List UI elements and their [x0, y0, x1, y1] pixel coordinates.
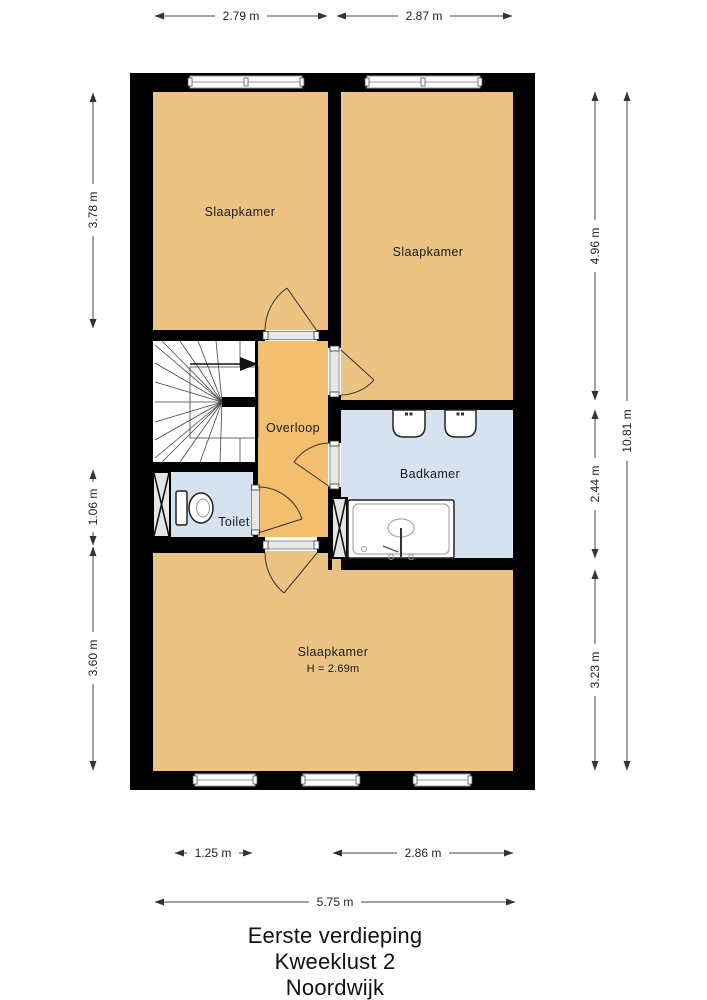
plan-title: Eerste verdieping Kweeklust 2 Noordwijk [248, 923, 423, 1000]
dim-right-1: 4.96 m [587, 92, 603, 400]
window-bottom-1 [193, 774, 257, 786]
bedroom-bottom-floor-left [153, 551, 341, 771]
dim-left-3: 3.60 m [85, 547, 101, 770]
wall-bedroomTL-bottom-right [317, 330, 341, 341]
svg-text:3.23 m: 3.23 m [588, 652, 602, 689]
dim-right-4: 10.81 m [619, 92, 635, 770]
title-floor: Eerste verdieping [248, 923, 423, 948]
duct-shaft-toilet [153, 472, 170, 537]
svg-text:2.86 m: 2.86 m [405, 846, 442, 860]
floor-plan-svg: Slaapkamer Slaapkamer Overloop Toilet Ba… [0, 0, 707, 1000]
inner-wall-center-mid [328, 395, 341, 443]
toilet-label: Toilet [218, 515, 250, 529]
outer-wall-right [513, 73, 535, 790]
stair-newel-wall [222, 397, 258, 407]
dim-bottom-1: 1.25 m [175, 845, 252, 861]
wall-bathroom-bottom [341, 558, 513, 570]
dim-top-2: 2.87 m [337, 8, 512, 24]
bedroom-top-right-label: Slaapkamer [393, 245, 464, 259]
svg-text:2.44 m: 2.44 m [588, 466, 602, 503]
sink-icon-left [393, 410, 425, 437]
svg-text:10.81 m: 10.81 m [620, 409, 634, 452]
svg-text:1.06 m: 1.06 m [86, 489, 100, 526]
bedroom-top-left-label: Slaapkamer [205, 205, 276, 219]
window-top-right [365, 76, 482, 88]
svg-text:2.79 m: 2.79 m [223, 9, 260, 23]
window-bottom-2 [301, 774, 360, 786]
floorplan-page: Slaapkamer Slaapkamer Overloop Toilet Ba… [0, 0, 707, 1000]
svg-text:1.25 m: 1.25 m [195, 846, 232, 860]
wall-stair-landing [255, 341, 258, 462]
bathroom-label: Badkamer [400, 467, 460, 481]
dim-right-2: 2.44 m [587, 410, 603, 558]
dim-left-1: 3.78 m [85, 93, 101, 328]
title-address: Kweeklust 2 [275, 949, 396, 974]
svg-text:3.78 m: 3.78 m [86, 192, 100, 229]
dim-right-3: 3.23 m [587, 570, 603, 770]
landing-floor [258, 341, 328, 537]
window-top-left [188, 76, 304, 88]
duct-shaft-bathroom [332, 498, 347, 558]
dim-top-1: 2.79 m [155, 8, 327, 24]
landing-label: Overloop [266, 421, 320, 435]
inner-wall-center-upper [328, 92, 341, 348]
bedroom-bottom-label: Slaapkamer [298, 645, 369, 659]
svg-text:4.96 m: 4.96 m [588, 228, 602, 265]
dim-left-2: 1.06 m [85, 470, 101, 545]
svg-text:3.60 m: 3.60 m [86, 640, 100, 677]
toilet-icon [176, 491, 213, 525]
wall-landing-bottom-left [153, 537, 265, 553]
dim-bottom-2: 2.86 m [333, 845, 513, 861]
bedroom-bottom-floor-right [341, 570, 513, 771]
wall-bathroom-top [341, 400, 513, 410]
svg-text:5.75 m: 5.75 m [317, 895, 354, 909]
svg-text:2.87 m: 2.87 m [406, 9, 443, 23]
shower-tray-icon [348, 500, 454, 560]
wall-under-stairs [153, 462, 258, 472]
window-bottom-3 [413, 774, 472, 786]
wall-bedroomTL-bottom-left [153, 330, 265, 341]
bedroom-bottom-height-label: H = 2.69m [307, 663, 360, 675]
outer-wall-left [130, 73, 153, 790]
sink-icon-right [445, 410, 476, 437]
title-city: Noordwijk [286, 975, 385, 1000]
dim-bottom-3: 5.75 m [155, 894, 515, 910]
